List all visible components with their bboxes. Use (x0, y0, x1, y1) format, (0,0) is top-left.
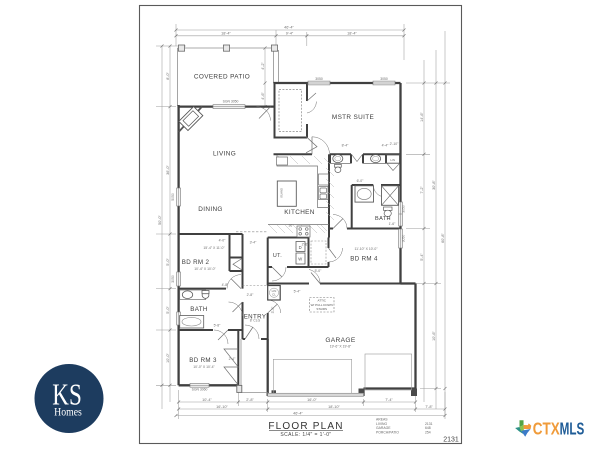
svg-text:MLS: MLS (560, 419, 585, 439)
svg-text:7'-8": 7'-8" (425, 405, 433, 409)
svg-text:36'-0": 36'-0" (166, 165, 170, 175)
svg-text:60'-8": 60'-8" (441, 233, 445, 243)
svg-text:4'-4": 4'-4" (382, 144, 390, 148)
svg-text:36": 36" (289, 224, 295, 228)
svg-text:PORCH/PATIO: PORCH/PATIO (376, 430, 399, 434)
svg-text:5'-0": 5'-0" (315, 269, 323, 273)
svg-text:8'-4": 8'-4" (342, 144, 350, 148)
svg-text:BD RM 4: BD RM 4 (350, 255, 378, 262)
svg-text:ISLAND: ISLAND (280, 188, 284, 198)
svg-text:GARAGE: GARAGE (325, 337, 356, 344)
svg-text:CTX: CTX (533, 420, 560, 439)
svg-text:8' CLG: 8' CLG (250, 319, 261, 323)
svg-text:18'-4": 18'-4" (221, 32, 231, 36)
svg-text:30'-8": 30'-8" (432, 180, 436, 190)
svg-text:1'-6": 1'-6" (389, 222, 397, 226)
svg-text:5'-4": 5'-4" (294, 290, 302, 294)
svg-text:46'-4": 46'-4" (284, 26, 294, 30)
svg-text:5'-8": 5'-8" (214, 324, 222, 328)
svg-text:SCALE: 1/4" = 1'-0": SCALE: 1/4" = 1'-0" (280, 432, 331, 438)
svg-text:7'-2": 7'-2" (420, 186, 424, 194)
svg-text:11'-10" X 10'-0": 11'-10" X 10'-0" (354, 247, 378, 251)
svg-text:BD RM 3: BD RM 3 (189, 357, 217, 364)
svg-text:6'-0": 6'-0" (357, 179, 365, 183)
svg-text:7'-4": 7'-4" (385, 398, 393, 402)
svg-text:3'-4": 3'-4" (250, 241, 258, 245)
svg-text:3'-0": 3'-0" (271, 306, 275, 314)
svg-text:Homes: Homes (54, 406, 82, 419)
svg-text:SGN 3050: SGN 3050 (223, 100, 239, 104)
svg-text:COVERED PATIO: COVERED PATIO (194, 74, 250, 81)
svg-text:50'-0": 50'-0" (158, 215, 162, 225)
svg-text:3050: 3050 (171, 275, 175, 283)
svg-text:MSTR SUITE: MSTR SUITE (332, 114, 374, 121)
svg-text:4'-6": 4'-6" (261, 92, 265, 100)
svg-text:14'-6": 14'-6" (420, 112, 424, 122)
svg-text:W: W (298, 257, 302, 262)
svg-text:2'-4": 2'-4" (229, 357, 237, 361)
svg-text:SGN 3060: SGN 3060 (192, 388, 208, 392)
svg-text:10'-0": 10'-0" (166, 353, 170, 363)
svg-text:UT.: UT. (273, 253, 282, 259)
svg-text:5'-0": 5'-0" (166, 258, 170, 266)
svg-text:STAIRS: STAIRS (316, 307, 327, 311)
svg-text:4'-2": 4'-2" (261, 62, 265, 70)
svg-text:254: 254 (425, 430, 431, 434)
svg-text:8'-0": 8'-0" (166, 72, 170, 80)
svg-text:BATH: BATH (190, 306, 207, 313)
svg-text:5050: 5050 (171, 193, 175, 201)
svg-text:5'-0": 5'-0" (166, 306, 170, 314)
svg-text:10'-6": 10'-6" (432, 331, 436, 341)
svg-text:5'-4": 5'-4" (420, 253, 424, 261)
svg-text:3050: 3050 (401, 235, 405, 243)
svg-text:18'-10": 18'-10" (328, 405, 340, 409)
svg-text:19'-6" X 19'-8": 19'-6" X 19'-8" (330, 345, 352, 349)
svg-text:10'-4" X 10'-0": 10'-4" X 10'-0" (194, 267, 216, 271)
svg-text:2'-6": 2'-6" (302, 243, 310, 247)
svg-text:18'-4": 18'-4" (347, 32, 357, 36)
svg-text:4'-0": 4'-0" (219, 239, 227, 243)
svg-text:2'-10": 2'-10" (390, 142, 399, 146)
svg-text:10'-4": 10'-4" (202, 398, 212, 402)
svg-text:16'-10": 16'-10" (216, 405, 228, 409)
svg-text:LIVING: LIVING (213, 151, 236, 158)
svg-text:4'-8": 4'-8" (222, 283, 230, 287)
svg-text:3050: 3050 (380, 77, 388, 81)
svg-text:LIN: LIN (390, 158, 395, 162)
svg-text:CL: CL (272, 292, 276, 296)
svg-text:46'-4": 46'-4" (293, 411, 303, 415)
svg-text:9'-4": 9'-4" (286, 32, 294, 36)
svg-text:DINING: DINING (198, 206, 222, 213)
svg-text:2'-8": 2'-8" (247, 293, 255, 297)
svg-text:2'-8": 2'-8" (246, 398, 254, 402)
svg-text:2131: 2131 (443, 437, 459, 444)
svg-text:BD RM 2: BD RM 2 (182, 259, 210, 266)
svg-text:KITCHEN: KITCHEN (284, 209, 315, 216)
svg-text:3050: 3050 (402, 205, 406, 213)
svg-text:10'-0" X 10'-4": 10'-0" X 10'-4" (193, 365, 215, 369)
svg-text:15'-4" X 11'-0": 15'-4" X 11'-0" (203, 246, 225, 250)
svg-text:16'-0": 16'-0" (307, 398, 317, 402)
svg-text:3050: 3050 (315, 77, 323, 81)
